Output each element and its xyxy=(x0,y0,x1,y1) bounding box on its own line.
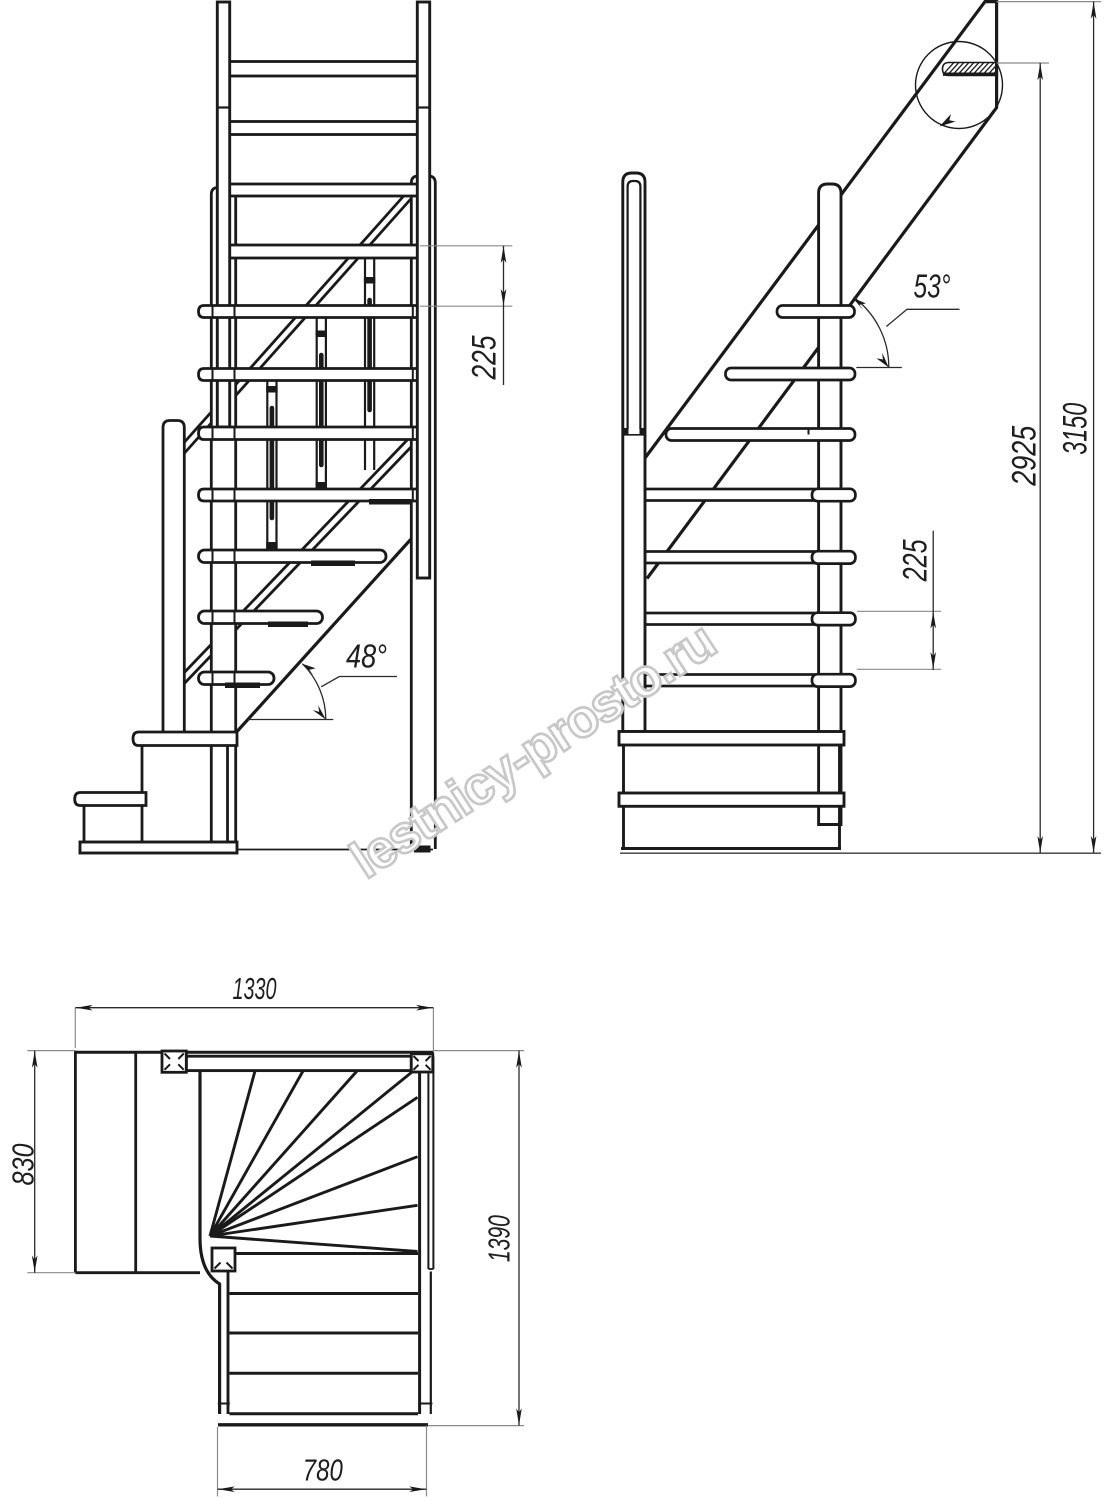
svg-text:2925: 2925 xyxy=(1006,426,1044,487)
svg-text:780: 780 xyxy=(303,1453,343,1488)
svg-text:225: 225 xyxy=(897,539,935,582)
svg-text:1390: 1390 xyxy=(482,1215,517,1262)
svg-text:830: 830 xyxy=(6,1144,41,1186)
svg-text:48°: 48° xyxy=(346,638,387,675)
svg-text:53°: 53° xyxy=(914,268,951,305)
svg-text:1330: 1330 xyxy=(233,971,277,1006)
svg-text:225: 225 xyxy=(466,335,504,380)
svg-text:3150: 3150 xyxy=(1057,403,1095,455)
